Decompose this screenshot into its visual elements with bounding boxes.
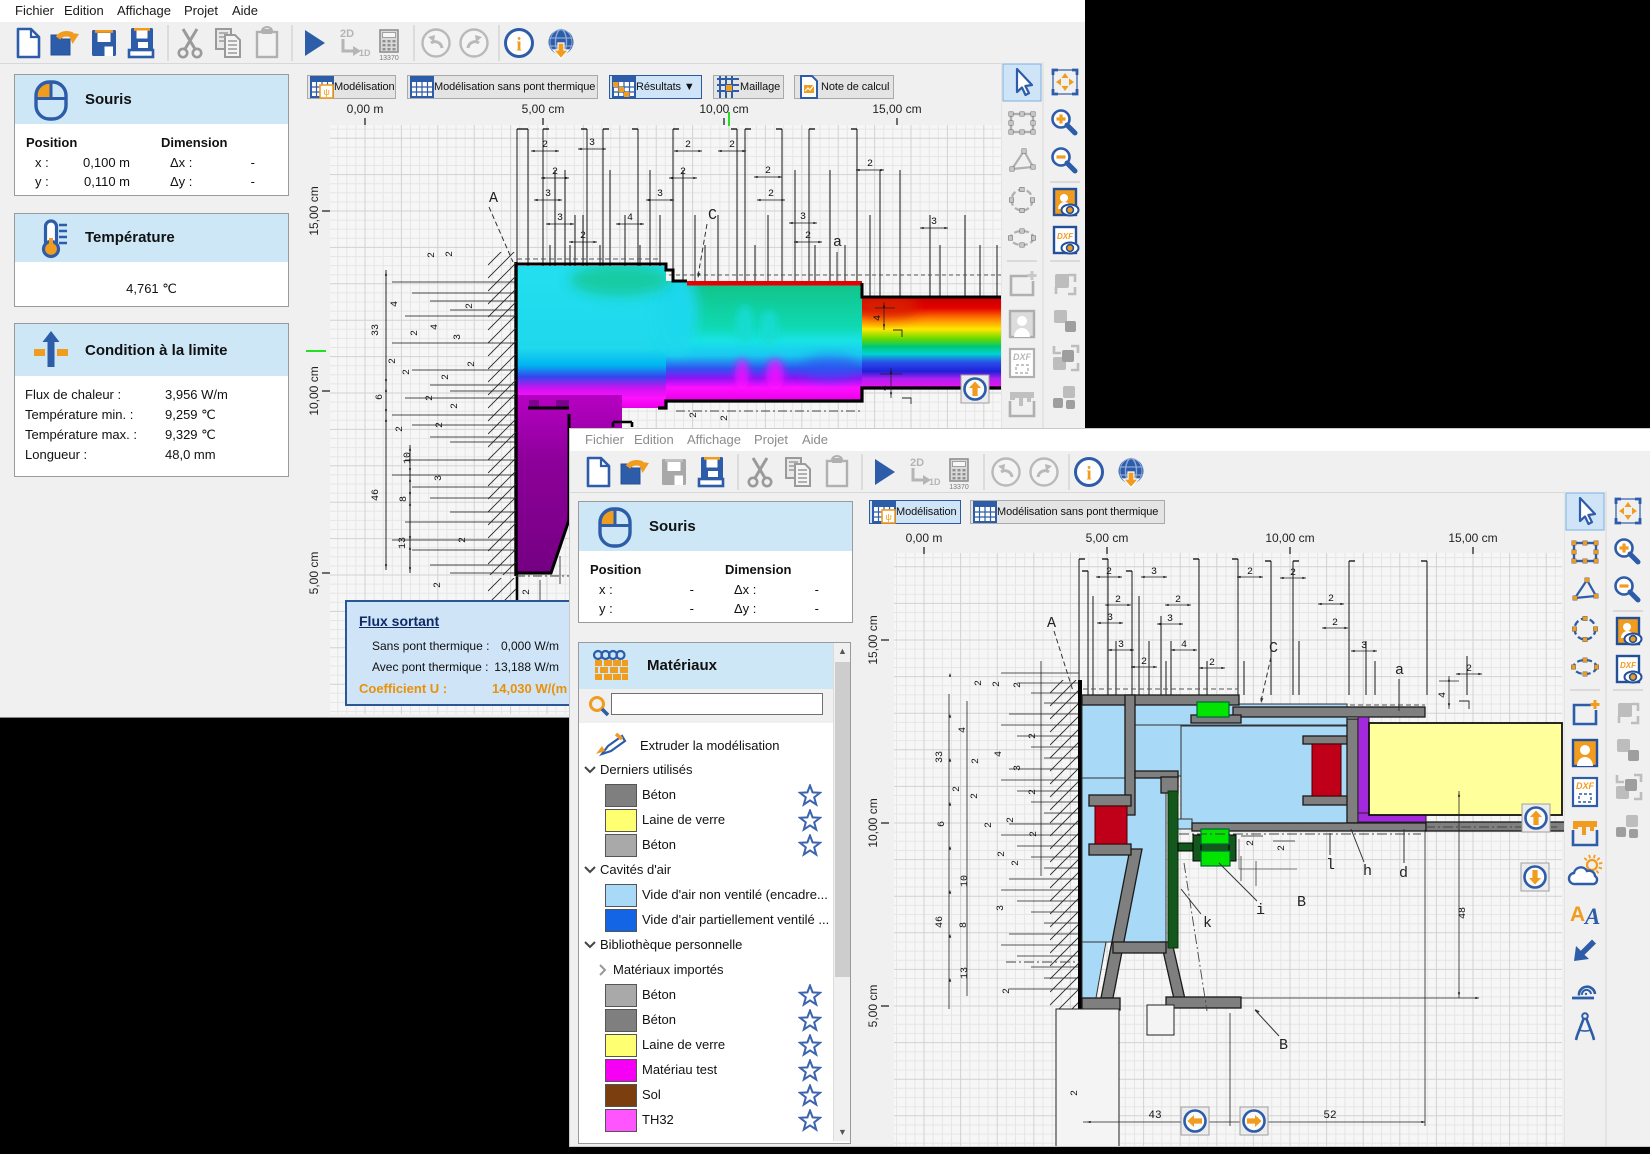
svg-text:5,00 cm: 5,00 cm bbox=[522, 102, 565, 116]
svg-text:2: 2 bbox=[997, 851, 1008, 857]
svg-text:i: i bbox=[1086, 464, 1091, 485]
svg-text:10: 10 bbox=[403, 452, 414, 464]
svg-text:3: 3 bbox=[557, 213, 563, 224]
svg-text:3: 3 bbox=[434, 475, 445, 481]
svg-text:2: 2 bbox=[1141, 657, 1147, 668]
svg-text:4: 4 bbox=[1438, 692, 1449, 698]
svg-text:C: C bbox=[708, 207, 717, 224]
svg-text:6: 6 bbox=[937, 821, 948, 827]
svg-text:2: 2 bbox=[1013, 682, 1024, 688]
svg-text:3: 3 bbox=[589, 138, 595, 149]
svg-text:2: 2 bbox=[1466, 664, 1472, 675]
svg-text:B: B bbox=[1279, 1037, 1288, 1054]
svg-text:2: 2 bbox=[435, 422, 446, 428]
svg-text:2: 2 bbox=[1175, 595, 1181, 606]
svg-text:4: 4 bbox=[958, 727, 969, 733]
svg-text:2: 2 bbox=[680, 167, 686, 178]
svg-text:2: 2 bbox=[765, 166, 771, 177]
svg-text:A: A bbox=[1570, 903, 1585, 926]
svg-text:ψ: ψ bbox=[885, 512, 891, 522]
svg-text:2: 2 bbox=[971, 758, 982, 764]
svg-text:DXF: DXF bbox=[1057, 232, 1074, 241]
svg-text:10,00 cm: 10,00 cm bbox=[307, 366, 321, 415]
svg-text:2: 2 bbox=[580, 231, 586, 242]
svg-text:4: 4 bbox=[994, 751, 1005, 757]
svg-text:43: 43 bbox=[1148, 1110, 1161, 1122]
svg-text:2: 2 bbox=[465, 303, 476, 309]
svg-text:2: 2 bbox=[425, 395, 436, 401]
svg-text:2: 2 bbox=[867, 159, 873, 170]
svg-text:2: 2 bbox=[1029, 831, 1040, 837]
svg-text:13: 13 bbox=[398, 537, 409, 549]
svg-text:2: 2 bbox=[458, 537, 469, 543]
svg-text:2: 2 bbox=[1115, 595, 1121, 606]
svg-text:2: 2 bbox=[433, 582, 444, 588]
svg-text:3: 3 bbox=[800, 212, 806, 223]
svg-text:3: 3 bbox=[1151, 567, 1157, 578]
svg-text:2: 2 bbox=[1290, 568, 1296, 579]
svg-text:4: 4 bbox=[627, 213, 633, 224]
svg-text:2: 2 bbox=[441, 374, 452, 380]
svg-text:2: 2 bbox=[1247, 567, 1253, 578]
svg-text:0,00 m: 0,00 m bbox=[906, 531, 943, 545]
svg-text:2D: 2D bbox=[340, 28, 354, 40]
svg-text:3: 3 bbox=[1167, 614, 1173, 625]
svg-text:d: d bbox=[1399, 865, 1408, 882]
svg-text:2: 2 bbox=[1002, 988, 1013, 994]
svg-text:1D: 1D bbox=[929, 477, 941, 487]
svg-text:4: 4 bbox=[1181, 640, 1187, 651]
svg-text:3: 3 bbox=[996, 905, 1007, 911]
svg-text:2: 2 bbox=[970, 793, 981, 799]
svg-text:48: 48 bbox=[1458, 907, 1469, 919]
svg-text:4: 4 bbox=[430, 324, 441, 330]
svg-text:2: 2 bbox=[1011, 860, 1022, 866]
svg-text:15,00 cm: 15,00 cm bbox=[872, 102, 921, 116]
svg-text:46: 46 bbox=[935, 916, 946, 928]
svg-text:a: a bbox=[833, 234, 842, 251]
svg-text:B: B bbox=[1297, 894, 1306, 911]
svg-text:ψ: ψ bbox=[323, 87, 329, 97]
svg-text:13370: 13370 bbox=[949, 484, 969, 491]
svg-text:46: 46 bbox=[371, 489, 382, 501]
svg-text:33: 33 bbox=[371, 324, 382, 336]
svg-text:2: 2 bbox=[1028, 789, 1039, 795]
svg-text:3: 3 bbox=[1013, 765, 1024, 771]
svg-text:2: 2 bbox=[952, 786, 963, 792]
svg-text:2: 2 bbox=[1006, 817, 1017, 823]
svg-text:10,00 cm: 10,00 cm bbox=[1265, 531, 1314, 545]
svg-text:13370: 13370 bbox=[379, 55, 399, 62]
svg-text:2: 2 bbox=[542, 140, 548, 151]
svg-text:2: 2 bbox=[1246, 840, 1257, 846]
svg-text:2: 2 bbox=[395, 426, 406, 432]
svg-text:3: 3 bbox=[453, 334, 464, 340]
svg-text:6: 6 bbox=[375, 394, 386, 400]
svg-text:2: 2 bbox=[1070, 1090, 1081, 1096]
svg-text:5,00 cm: 5,00 cm bbox=[1086, 531, 1129, 545]
svg-text:2: 2 bbox=[768, 189, 774, 200]
svg-text:DXF: DXF bbox=[1576, 781, 1595, 791]
svg-text:A: A bbox=[489, 190, 498, 207]
svg-text:2: 2 bbox=[388, 358, 399, 364]
svg-text:2: 2 bbox=[1106, 567, 1112, 578]
svg-text:10,00 cm: 10,00 cm bbox=[866, 798, 880, 847]
svg-text:3: 3 bbox=[1118, 640, 1124, 651]
svg-text:5,00 cm: 5,00 cm bbox=[307, 552, 321, 595]
svg-text:3: 3 bbox=[931, 217, 937, 228]
svg-text:13: 13 bbox=[960, 967, 971, 979]
svg-text:i: i bbox=[1256, 902, 1265, 919]
svg-text:2: 2 bbox=[450, 403, 461, 409]
svg-text:2D: 2D bbox=[910, 457, 924, 469]
svg-text:3: 3 bbox=[1107, 613, 1113, 624]
svg-text:DXF: DXF bbox=[1620, 661, 1637, 670]
svg-text:2: 2 bbox=[467, 361, 478, 367]
svg-text:2: 2 bbox=[1028, 733, 1039, 739]
svg-text:C: C bbox=[1269, 640, 1278, 657]
svg-text:2: 2 bbox=[974, 680, 985, 686]
svg-text:2: 2 bbox=[552, 167, 558, 178]
svg-text:2: 2 bbox=[402, 369, 413, 375]
svg-text:k: k bbox=[1203, 915, 1212, 932]
svg-text:4: 4 bbox=[873, 315, 884, 321]
svg-text:A: A bbox=[1583, 904, 1600, 929]
svg-text:15,00 cm: 15,00 cm bbox=[1448, 531, 1497, 545]
svg-text:2: 2 bbox=[410, 330, 421, 336]
svg-text:2: 2 bbox=[1209, 658, 1215, 669]
svg-text:2: 2 bbox=[1328, 594, 1334, 605]
svg-text:2: 2 bbox=[427, 252, 438, 258]
svg-text:2: 2 bbox=[729, 140, 735, 151]
svg-text:4: 4 bbox=[390, 301, 401, 307]
svg-text:A: A bbox=[1047, 615, 1056, 632]
svg-text:2: 2 bbox=[984, 822, 995, 828]
svg-text:8: 8 bbox=[959, 922, 970, 928]
svg-text:15,00 cm: 15,00 cm bbox=[866, 615, 880, 664]
svg-text:2: 2 bbox=[720, 415, 731, 421]
svg-text:3: 3 bbox=[657, 189, 663, 200]
svg-text:DXF: DXF bbox=[1013, 352, 1032, 362]
svg-text:0,00 m: 0,00 m bbox=[347, 102, 384, 116]
svg-text:15,00 cm: 15,00 cm bbox=[307, 186, 321, 235]
svg-text:2: 2 bbox=[685, 140, 691, 151]
svg-text:3: 3 bbox=[1361, 641, 1367, 652]
svg-text:a: a bbox=[1395, 662, 1404, 679]
svg-text:4: 4 bbox=[880, 385, 891, 391]
svg-text:h: h bbox=[1363, 863, 1372, 880]
svg-text:10,00 cm: 10,00 cm bbox=[699, 102, 748, 116]
svg-text:52: 52 bbox=[1323, 1110, 1336, 1122]
svg-text:1D: 1D bbox=[359, 48, 371, 58]
svg-text:3: 3 bbox=[545, 189, 551, 200]
svg-text:2: 2 bbox=[445, 251, 456, 257]
svg-text:2: 2 bbox=[992, 681, 1003, 687]
svg-text:5,00 cm: 5,00 cm bbox=[866, 985, 880, 1028]
svg-text:2: 2 bbox=[1332, 618, 1338, 629]
svg-text:2: 2 bbox=[522, 589, 533, 595]
svg-text:l: l bbox=[1326, 857, 1335, 874]
svg-text:2: 2 bbox=[805, 231, 811, 242]
svg-text:10: 10 bbox=[960, 875, 971, 887]
svg-text:i: i bbox=[516, 35, 521, 56]
svg-text:33: 33 bbox=[935, 751, 946, 763]
svg-text:2: 2 bbox=[1277, 845, 1288, 851]
svg-text:8: 8 bbox=[399, 496, 410, 502]
svg-text:2: 2 bbox=[689, 412, 700, 418]
